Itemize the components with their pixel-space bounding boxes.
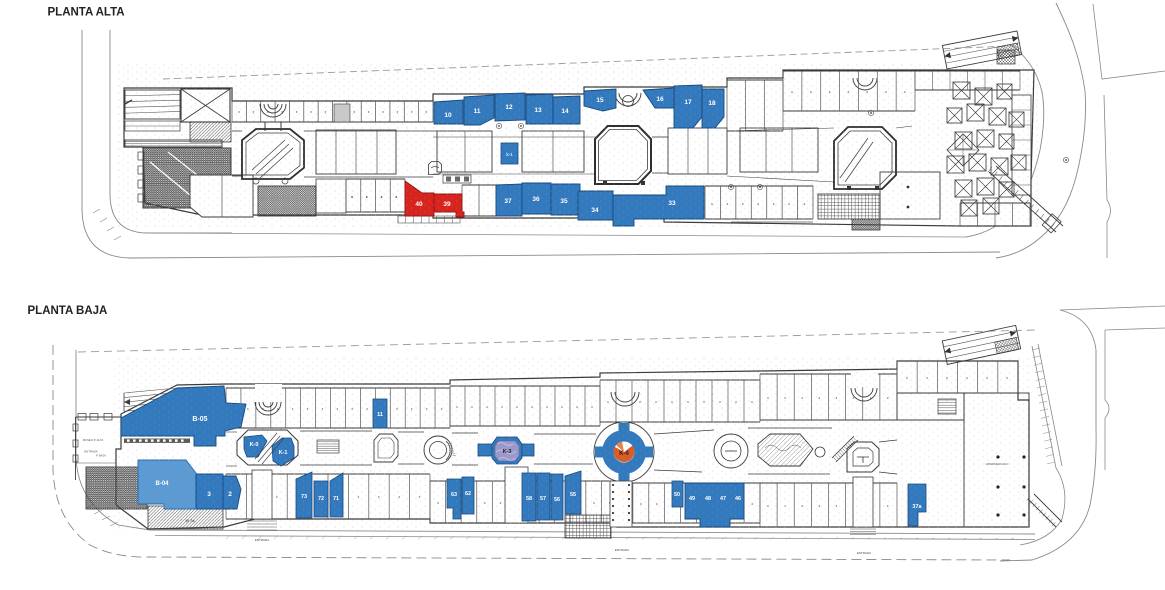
svg-text:PLANTA BAJA: PLANTA BAJA [28,305,108,317]
svg-text:PLANTA ALTA: PLANTA ALTA [48,7,125,19]
svg-text:P. BAJA: P. BAJA [96,454,106,458]
svg-text:MUSEO P. ALTA: MUSEO P. ALTA [83,438,104,442]
svg-text:ENTRADA: ENTRADA [615,548,629,552]
svg-text:ENTRADA: ENTRADA [255,538,269,542]
svg-text:ENTRADA: ENTRADA [857,551,871,555]
